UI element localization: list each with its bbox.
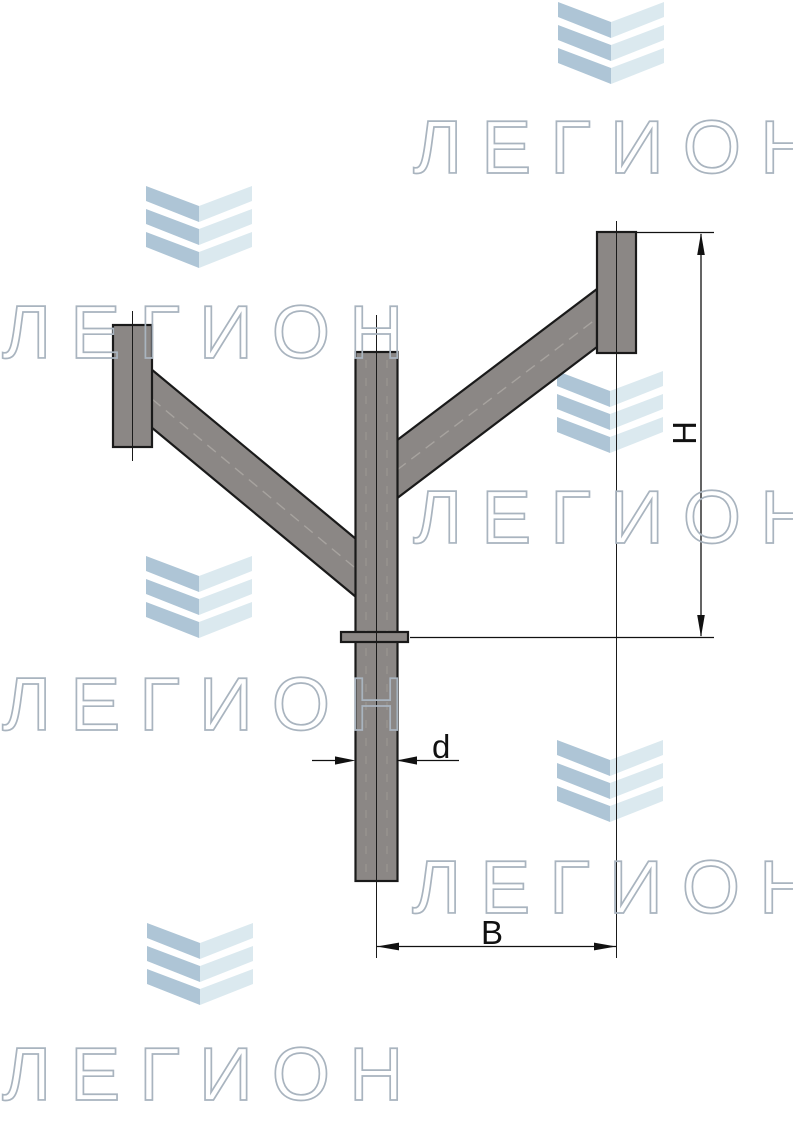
- drawing-page: ЛЕГИОН ЛЕГИОН ЛЕГИОН ЛЕГИОН ЛЕГИОН ЛЕГИО…: [0, 0, 793, 1123]
- bracket-drawing: [0, 0, 793, 1123]
- height-dimension-label: Н: [664, 413, 704, 453]
- bracket-right-arm: [396, 289, 597, 499]
- mounting-flange: [341, 632, 408, 642]
- diameter-dimension-label: d: [432, 730, 450, 763]
- width-dimension-label: В: [481, 916, 503, 949]
